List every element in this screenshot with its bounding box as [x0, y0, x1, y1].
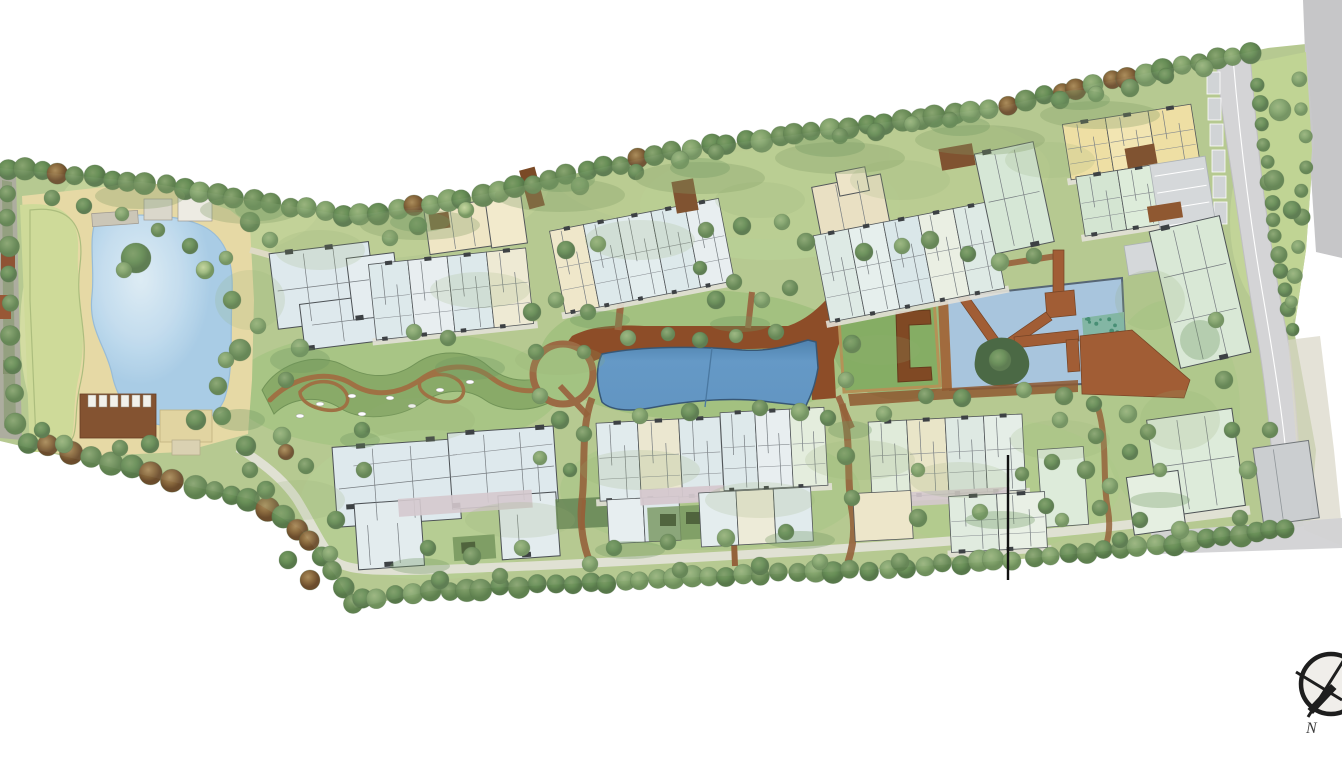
svg-text:N: N: [1305, 720, 1318, 737]
